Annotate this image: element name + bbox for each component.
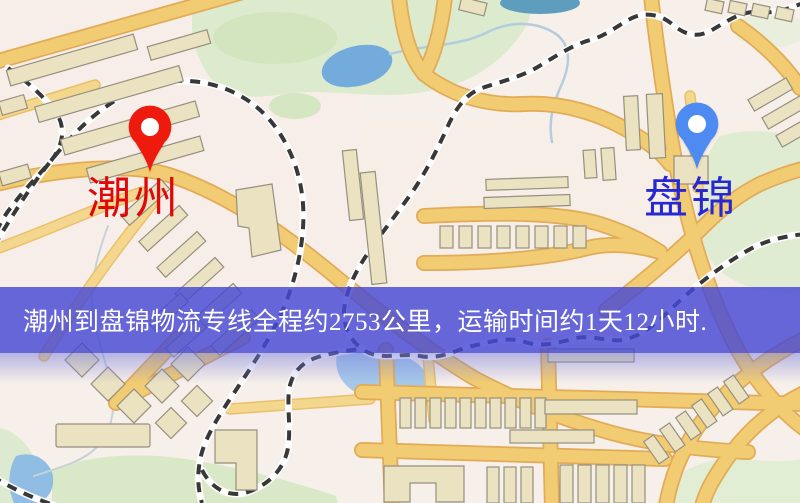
origin-pin-icon[interactable] (122, 102, 178, 174)
destination-pin-body (676, 103, 719, 169)
destination-city-label: 盘锦 (644, 176, 738, 222)
origin-pin-body (129, 106, 172, 172)
route-info-banner: 潮州到盘锦物流专线全程约2753公里，运输时间约1天12小时. (0, 287, 800, 353)
route-info-text: 潮州到盘锦物流专线全程约2753公里，运输时间约1天12小时. (23, 302, 707, 338)
logistics-map-screenshot: 潮州到盘锦物流专线全程约2753公里，运输时间约1天12小时. 潮州 盘锦 (0, 0, 800, 503)
origin-pin-hole (141, 118, 159, 136)
map-canvas[interactable] (0, 0, 800, 503)
destination-pin-hole (688, 115, 706, 133)
origin-city-label: 潮州 (87, 176, 181, 222)
destination-pin-icon[interactable] (669, 99, 725, 171)
